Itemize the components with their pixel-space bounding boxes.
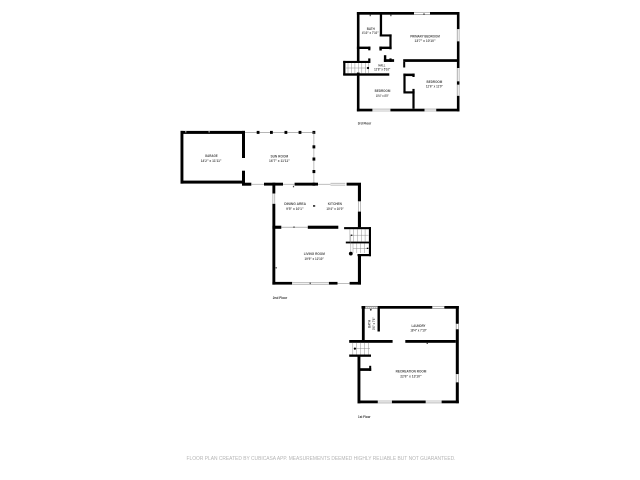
svg-text:10'4" x 8'5": 10'4" x 8'5": [376, 94, 389, 98]
svg-text:19'9" x 12'10": 19'9" x 12'10": [305, 257, 325, 261]
svg-text:DINING AREA: DINING AREA: [284, 201, 306, 206]
svg-text:GARAGE: GARAGE: [205, 153, 218, 158]
svg-text:12'8" x 5'10": 12'8" x 5'10": [374, 68, 390, 72]
svg-text:22'6" x 13'10": 22'6" x 13'10": [400, 375, 422, 379]
svg-text:3'6" x 7'6": 3'6" x 7'6": [372, 317, 376, 330]
svg-text:14'2" x 11'11": 14'2" x 11'11": [201, 159, 222, 163]
svg-text:BEDROOM: BEDROOM: [375, 88, 391, 93]
svg-text:2nd Floor: 2nd Floor: [273, 296, 288, 300]
svg-text:KITCHEN: KITCHEN: [328, 201, 342, 206]
svg-text:3rd Floor: 3rd Floor: [358, 121, 372, 125]
svg-text:12'6" x 11'0": 12'6" x 11'0": [426, 85, 443, 89]
svg-text:1st Floor: 1st Floor: [358, 415, 371, 419]
svg-text:SUN ROOM: SUN ROOM: [270, 153, 288, 158]
svg-text:4'10" x 7'10": 4'10" x 7'10": [362, 31, 379, 35]
svg-text:13'7" x 10'10": 13'7" x 10'10": [415, 39, 436, 43]
svg-text:RECREATION ROOM: RECREATION ROOM: [396, 369, 427, 374]
svg-text:18'4" x 7'10": 18'4" x 7'10": [410, 329, 427, 333]
svg-text:FLOOR PLAN CREATED BY CUBICASA: FLOOR PLAN CREATED BY CUBICASA APP. MEAS…: [187, 456, 456, 462]
svg-text:10'4" x 10'0": 10'4" x 10'0": [326, 207, 344, 211]
svg-text:BEDROOM: BEDROOM: [427, 79, 443, 84]
svg-text:BATH: BATH: [367, 320, 372, 328]
svg-text:LIVING ROOM: LIVING ROOM: [304, 251, 326, 256]
svg-text:LAUNDRY: LAUNDRY: [412, 323, 426, 328]
svg-text:9'5" x 10'1": 9'5" x 10'1": [286, 207, 304, 211]
svg-text:PRIMARY BEDROOM: PRIMARY BEDROOM: [410, 34, 440, 39]
svg-text:16'7" x 11'11": 16'7" x 11'11": [269, 159, 290, 163]
